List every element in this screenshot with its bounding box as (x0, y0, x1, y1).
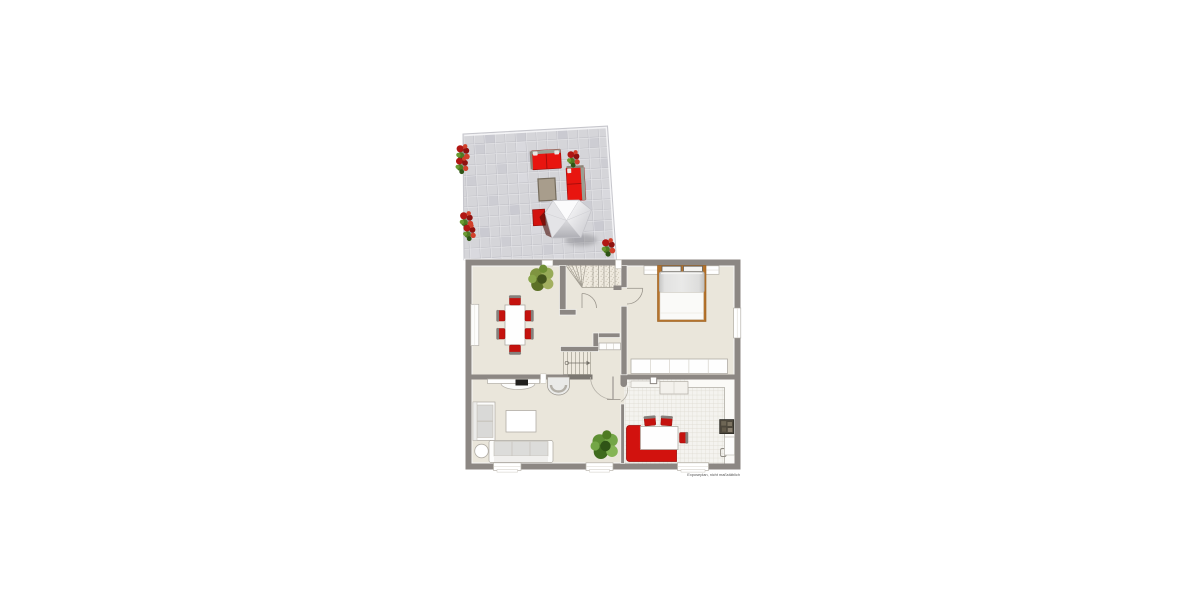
svg-text:Exposeplan, nicht maßstäblich: Exposeplan, nicht maßstäblich (687, 472, 740, 477)
